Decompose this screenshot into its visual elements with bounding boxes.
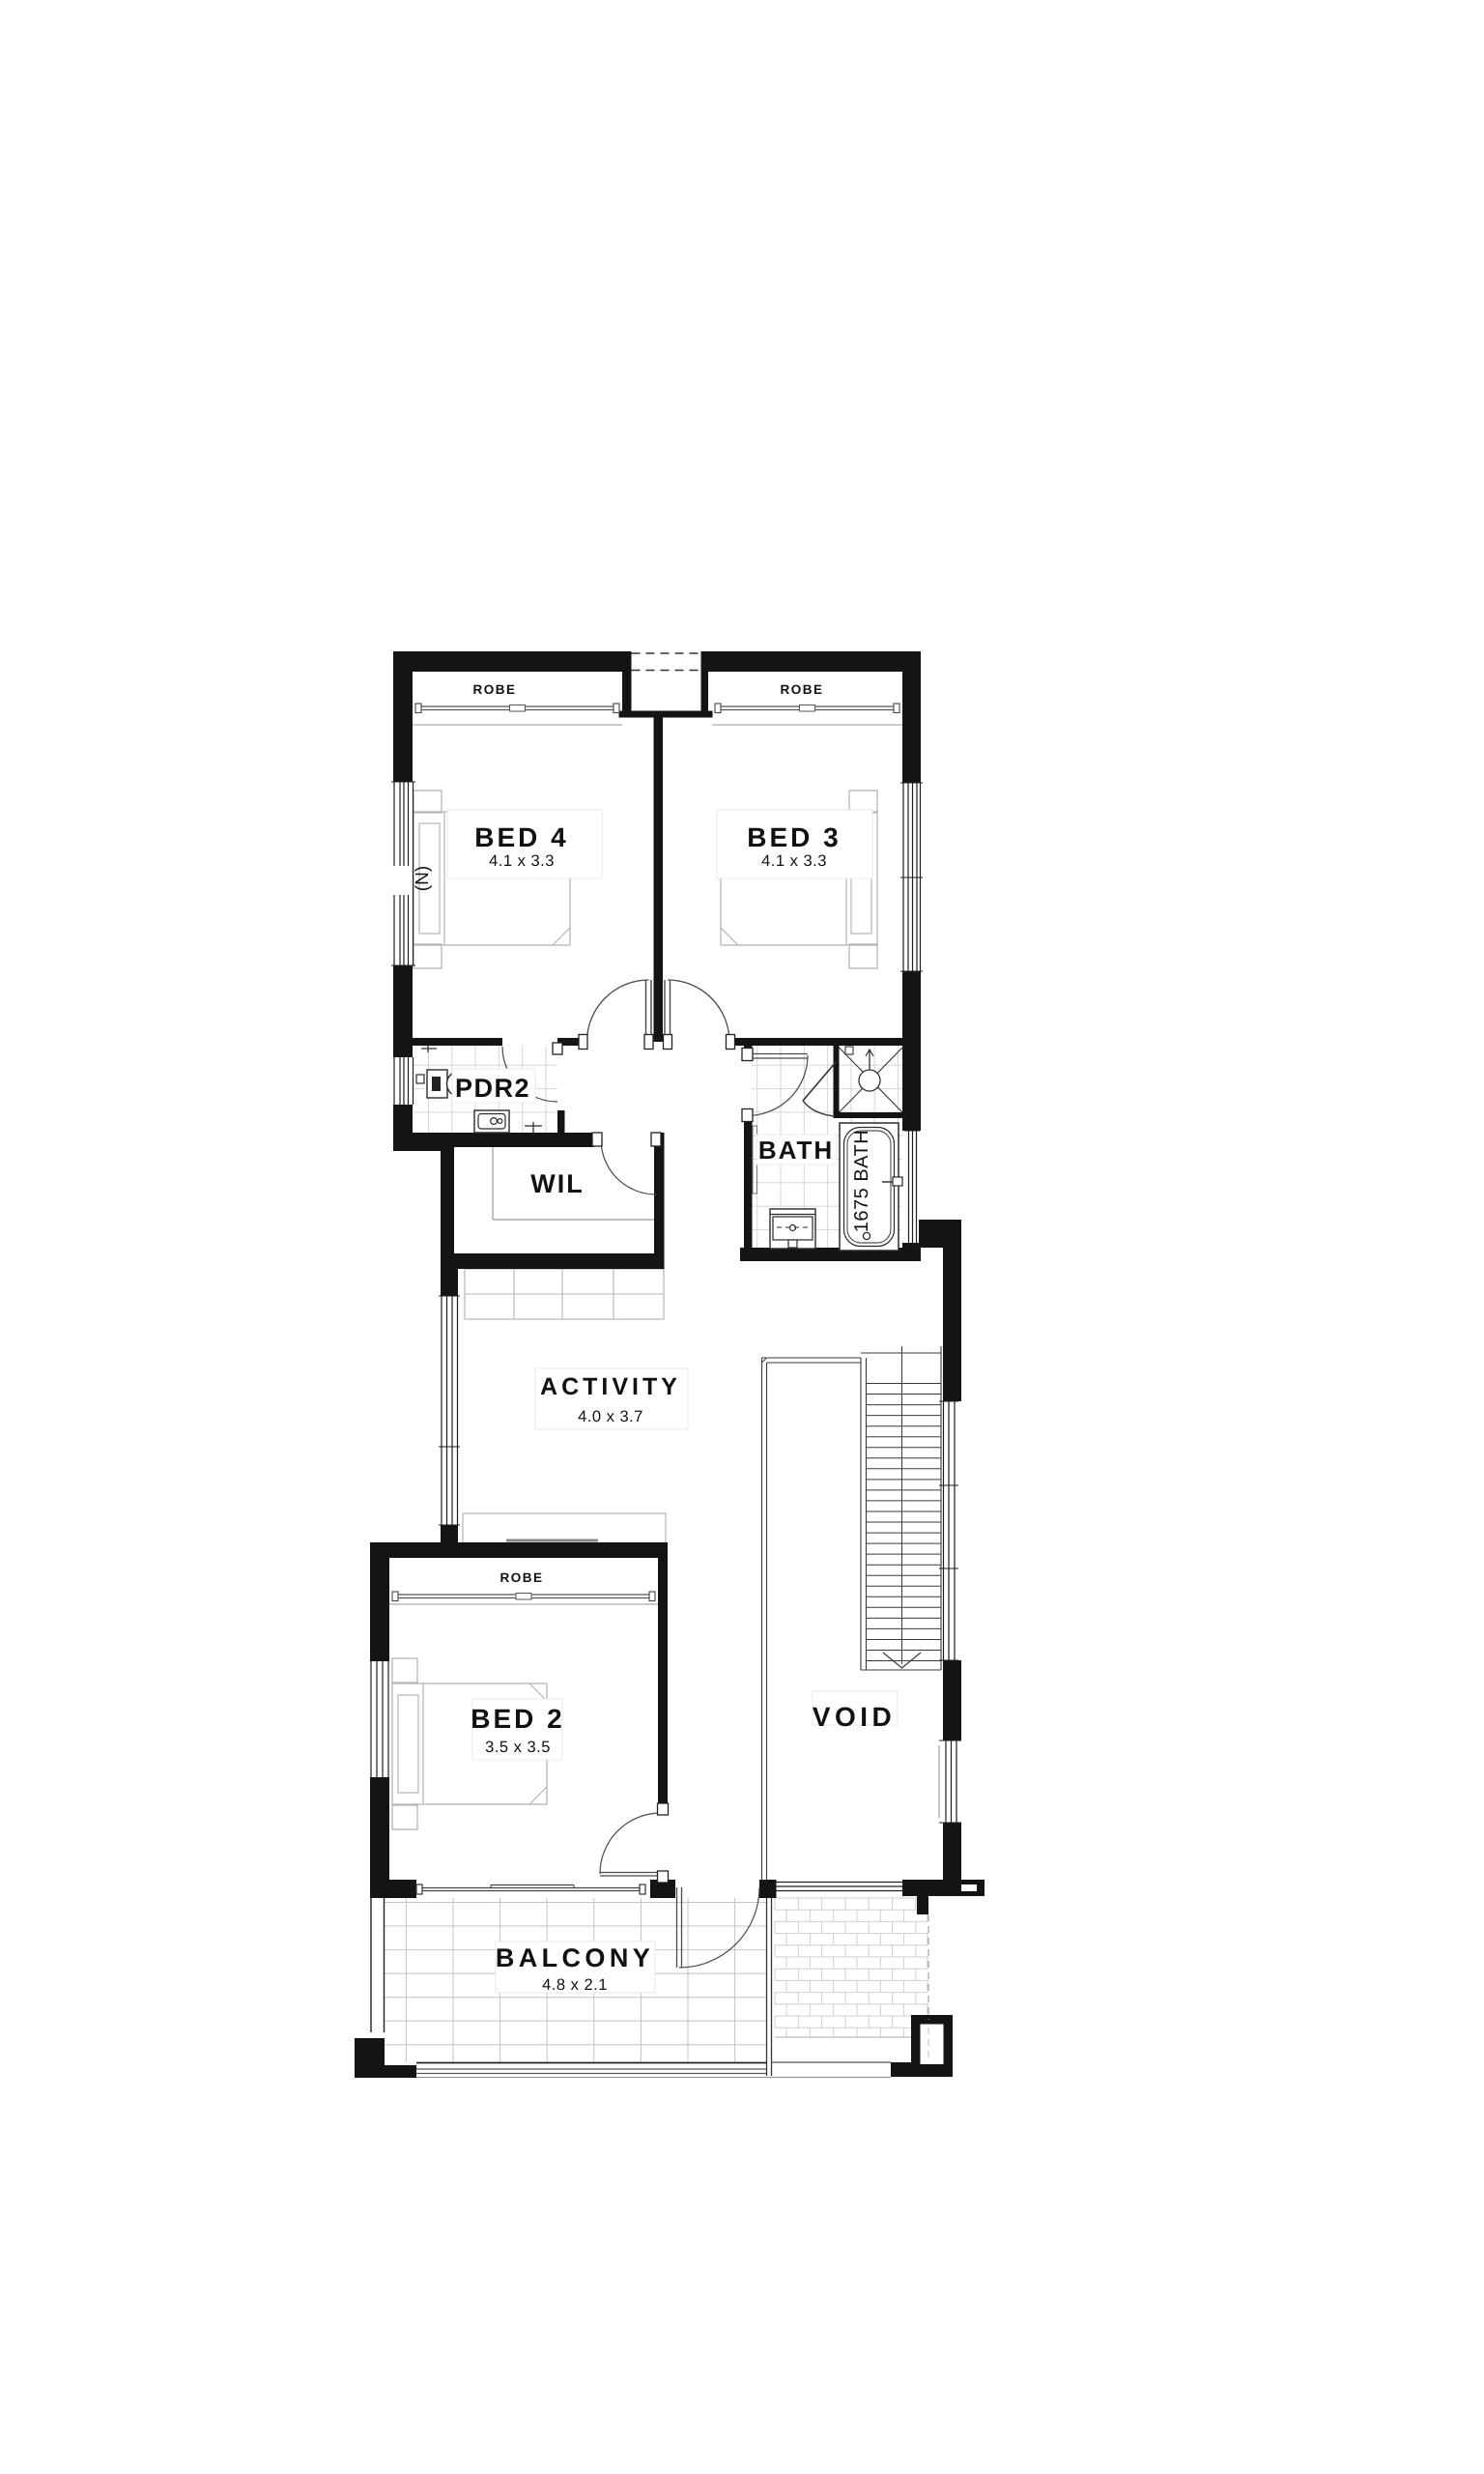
svg-text:4.0 x 3.7: 4.0 x 3.7	[578, 1408, 643, 1425]
svg-text:ACTIVITY: ACTIVITY	[540, 1373, 681, 1400]
svg-text:WIL: WIL	[530, 1169, 584, 1198]
svg-text:BED 2: BED 2	[471, 1704, 564, 1734]
svg-text:3.5 x 3.5: 3.5 x 3.5	[485, 1739, 551, 1756]
svg-text:BATH: BATH	[758, 1136, 834, 1165]
svg-text:(N): (N)	[413, 866, 433, 891]
svg-text:1675 BATH: 1675 BATH	[851, 1130, 872, 1232]
svg-text:ROBE: ROBE	[472, 682, 516, 697]
svg-text:4.1 x 3.3: 4.1 x 3.3	[489, 852, 555, 870]
svg-text:4.8 x 2.1: 4.8 x 2.1	[542, 1976, 608, 1994]
svg-text:PDR2: PDR2	[455, 1074, 530, 1103]
svg-text:4.1 x 3.3: 4.1 x 3.3	[761, 852, 827, 870]
svg-text:ROBE: ROBE	[780, 682, 823, 697]
svg-text:BED 3: BED 3	[747, 822, 841, 852]
svg-text:BED 4: BED 4	[474, 822, 568, 852]
svg-text:ROBE: ROBE	[499, 1570, 543, 1585]
svg-text:VOID: VOID	[813, 1702, 896, 1732]
svg-text:BALCONY: BALCONY	[496, 1943, 654, 1972]
